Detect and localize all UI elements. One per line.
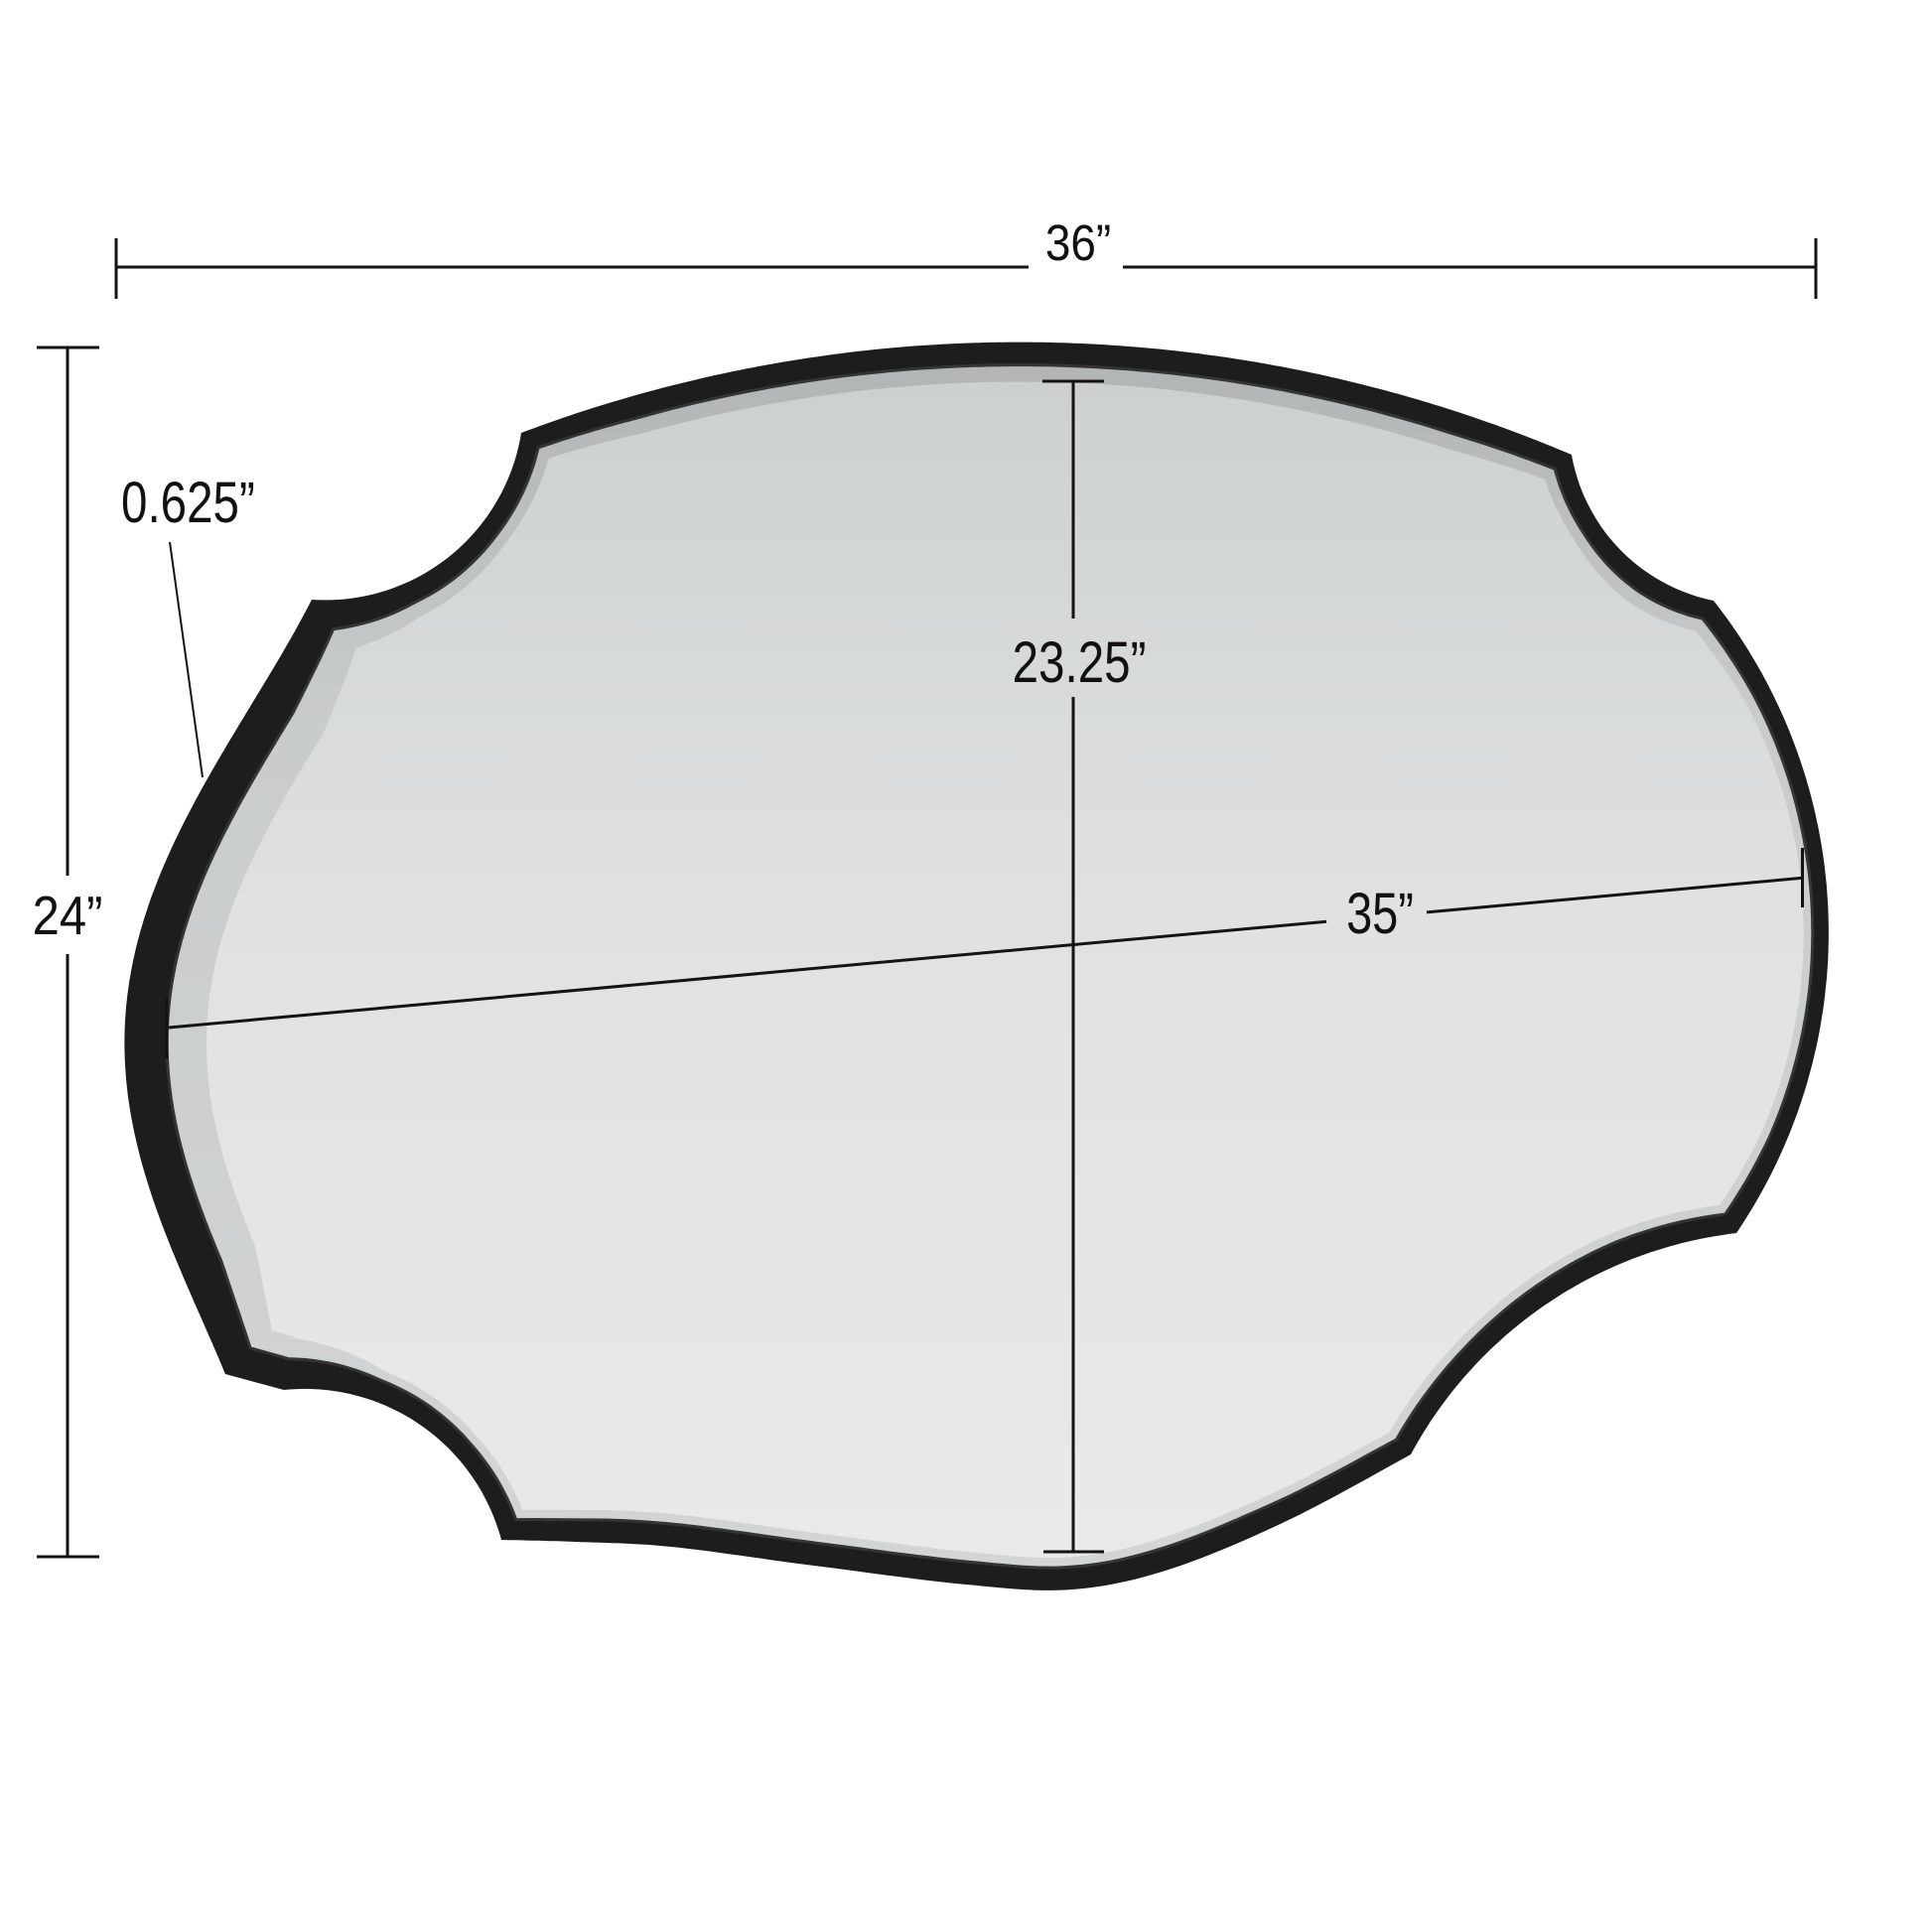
svg-text:36”: 36” xyxy=(1045,215,1111,272)
svg-text:24”: 24” xyxy=(33,886,103,946)
svg-text:35”: 35” xyxy=(1346,882,1414,946)
svg-text:23.25”: 23.25” xyxy=(1013,631,1147,696)
svg-text:0.625”: 0.625” xyxy=(121,472,255,536)
